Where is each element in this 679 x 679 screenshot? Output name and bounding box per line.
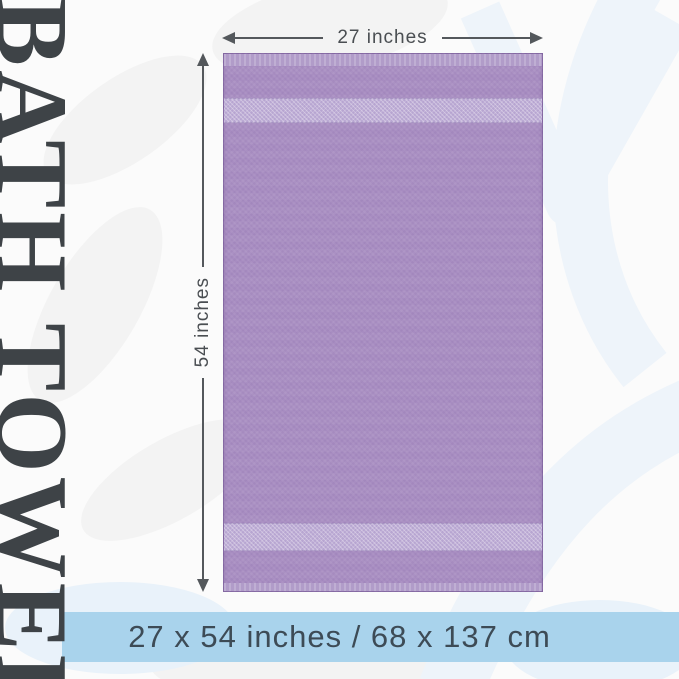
vertical-product-title: BATH TOWEL [0,0,82,679]
dimension-line [202,66,204,267]
arrowhead-down-icon [197,579,209,592]
arrowhead-left-icon [222,32,235,44]
product-dimension-image: 27 x 54 inches / 68 x 137 cm BATH TOWEL … [0,0,679,679]
towel-bottom-dobby-band [224,523,542,551]
dimension-line [235,37,323,39]
dimension-line [202,378,204,579]
towel-image [223,53,543,592]
dimension-line [442,37,530,39]
towel-bottom-hem [224,583,542,591]
towel-top-hem [224,54,542,66]
height-dimension-annotation: 54 inches [192,53,213,592]
width-dimension-annotation: 27 inches [222,29,543,46]
size-banner-label: 27 x 54 inches / 68 x 137 cm [0,612,679,662]
height-dimension-label: 54 inches [192,277,214,367]
towel-top-dobby-band [224,98,542,123]
arrowhead-right-icon [530,32,543,44]
arrowhead-up-icon [197,53,209,66]
width-dimension-label: 27 inches [323,27,441,49]
